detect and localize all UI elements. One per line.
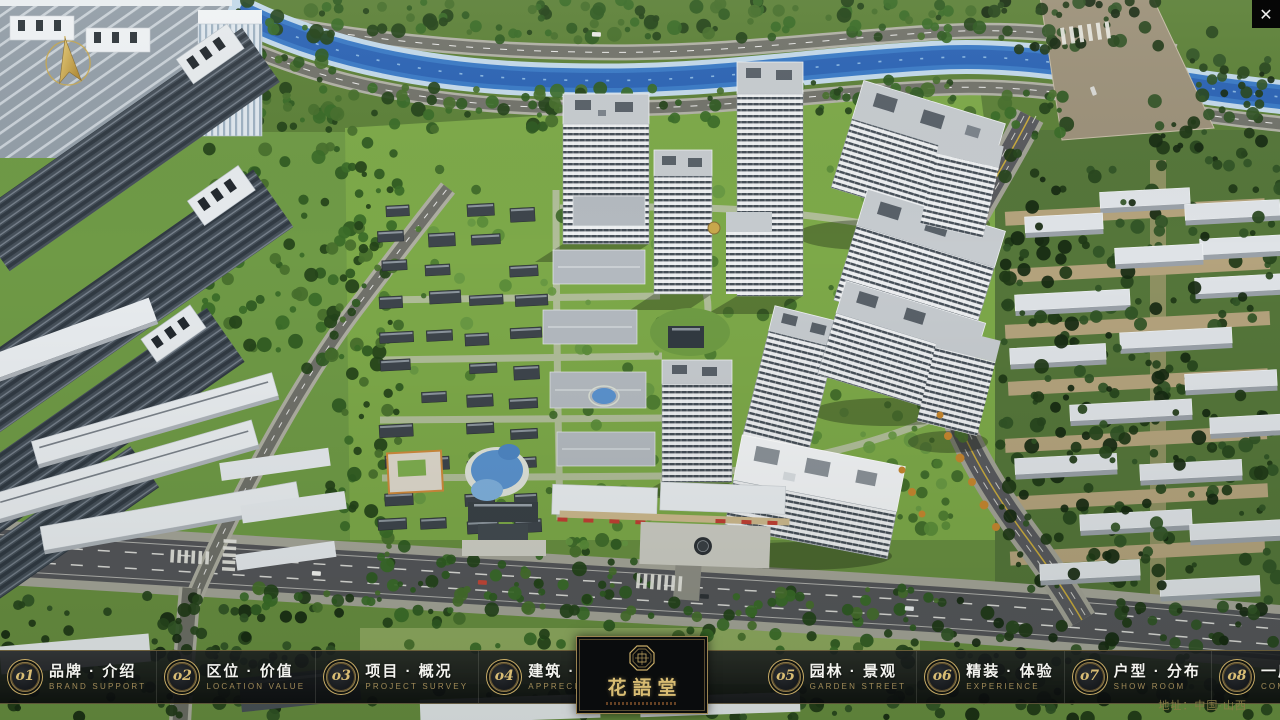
- nav-number-badge: o7: [1075, 662, 1105, 692]
- nav-number-badge: o8: [1222, 662, 1252, 692]
- seal-icon: [629, 645, 655, 671]
- nav-label-en: PROJECT SURVEY: [365, 682, 468, 691]
- nav-label-en: GARDEN STREET: [810, 682, 907, 691]
- nav-label-zh: 品牌 · 介绍: [49, 663, 146, 680]
- masterplan-render: [0, 0, 1280, 720]
- nav-group-left: o1 品牌 · 介绍 BRAND SUPPORT o2 区位 · 价值 LOCA…: [0, 651, 627, 703]
- nav-item[interactable]: o1 品牌 · 介绍 BRAND SUPPORT: [0, 651, 157, 703]
- nav-item[interactable]: o7 户型 · 分布 SHOW ROOM: [1065, 651, 1212, 703]
- nav-label-en: LOCATION VALUE: [206, 682, 305, 691]
- nav-label-zh: 区位 · 价值: [206, 663, 305, 680]
- nav-label-en: EXPERIENCE: [966, 682, 1053, 691]
- nav-item[interactable]: o3 项目 · 概况 PROJECT SURVEY: [316, 651, 479, 703]
- project-address: 地址：中国·山西: [1158, 697, 1247, 713]
- nav-item[interactable]: o2 区位 · 价值 LOCATION VALUE: [157, 651, 316, 703]
- nav-item[interactable]: o6 精装 · 体验 EXPERIENCE: [917, 651, 1064, 703]
- nav-item[interactable]: o5 园林 · 景观 GARDEN STREET: [761, 651, 918, 703]
- logo-title: 花語堂: [601, 673, 682, 700]
- nav-label-en: BRAND SUPPORT: [49, 682, 146, 691]
- nav-number-badge: o4: [489, 662, 519, 692]
- nav-group-right: o5 园林 · 景观 GARDEN STREET o6 精装 · 体验 EXPE…: [761, 651, 1280, 703]
- nav-label-en: COMMUNITY: [1261, 682, 1280, 691]
- compass-icon: [38, 30, 98, 92]
- nav-label-zh: 精装 · 体验: [966, 663, 1053, 680]
- nav-number-badge: o3: [326, 662, 356, 692]
- nav-label-zh: 户型 · 分布: [1114, 663, 1201, 680]
- presentation-stage: ✕ o1 品牌 · 介绍 BRAND SUPPORT o2 区位 · 价值 LO…: [0, 0, 1280, 720]
- nav-number-badge: o6: [927, 662, 957, 692]
- nav-label-zh: 项目 · 概况: [365, 663, 468, 680]
- nav-item[interactable]: o8 一房 · 一景 COMMUNITY: [1212, 651, 1280, 703]
- nav-label-en: SHOW ROOM: [1114, 682, 1201, 691]
- nav-label-zh: 一房 · 一景: [1261, 663, 1280, 680]
- project-logo[interactable]: 花語堂: [576, 636, 708, 714]
- light-vignette: [0, 0, 1280, 720]
- nav-number-badge: o2: [167, 662, 197, 692]
- nav-number-badge: o1: [10, 662, 40, 692]
- close-button[interactable]: ✕: [1252, 0, 1280, 28]
- nav-number-badge: o5: [771, 662, 801, 692]
- logo-subtext-strip: [606, 702, 678, 705]
- nav-label-zh: 园林 · 景观: [810, 663, 907, 680]
